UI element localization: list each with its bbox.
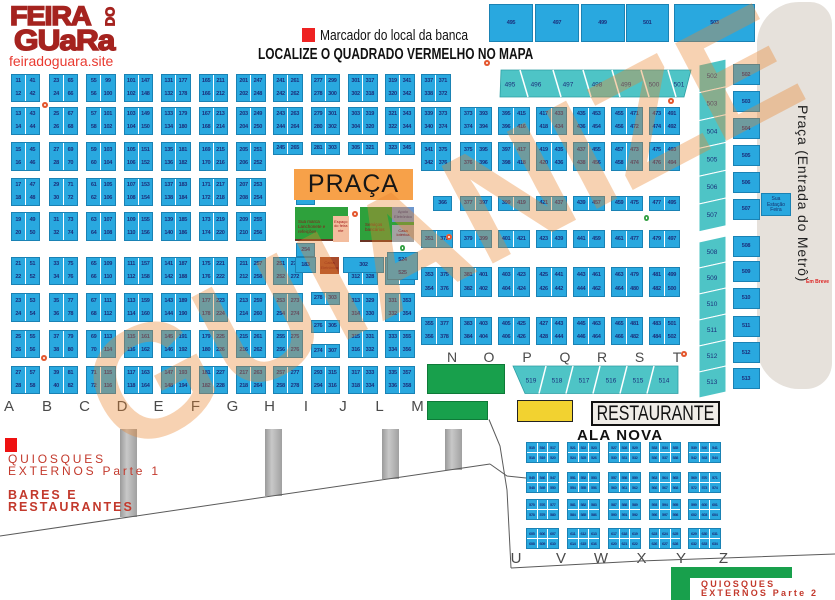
- svg-text:518: 518: [552, 378, 563, 385]
- svg-text:497: 497: [563, 82, 574, 89]
- svg-text:505: 505: [707, 156, 718, 163]
- svg-text:519: 519: [526, 378, 537, 385]
- svg-text:496: 496: [531, 82, 542, 89]
- svg-text:509: 509: [707, 275, 718, 282]
- svg-text:504: 504: [707, 129, 718, 136]
- svg-text:500: 500: [649, 82, 660, 89]
- svg-text:511: 511: [707, 327, 718, 334]
- svg-text:510: 510: [707, 301, 718, 308]
- svg-text:502: 502: [707, 73, 718, 80]
- svg-text:501: 501: [674, 82, 685, 89]
- svg-text:499: 499: [621, 82, 632, 89]
- svg-text:498: 498: [592, 82, 603, 89]
- svg-text:495: 495: [505, 82, 516, 89]
- svg-text:512: 512: [707, 353, 718, 360]
- svg-text:514: 514: [659, 378, 670, 385]
- svg-text:503: 503: [707, 101, 718, 108]
- svg-text:508: 508: [707, 249, 718, 256]
- svg-text:516: 516: [606, 378, 617, 385]
- svg-text:506: 506: [707, 184, 718, 191]
- svg-text:515: 515: [633, 378, 644, 385]
- svg-text:517: 517: [579, 378, 590, 385]
- svg-text:513: 513: [707, 379, 718, 386]
- svg-text:507: 507: [707, 212, 718, 219]
